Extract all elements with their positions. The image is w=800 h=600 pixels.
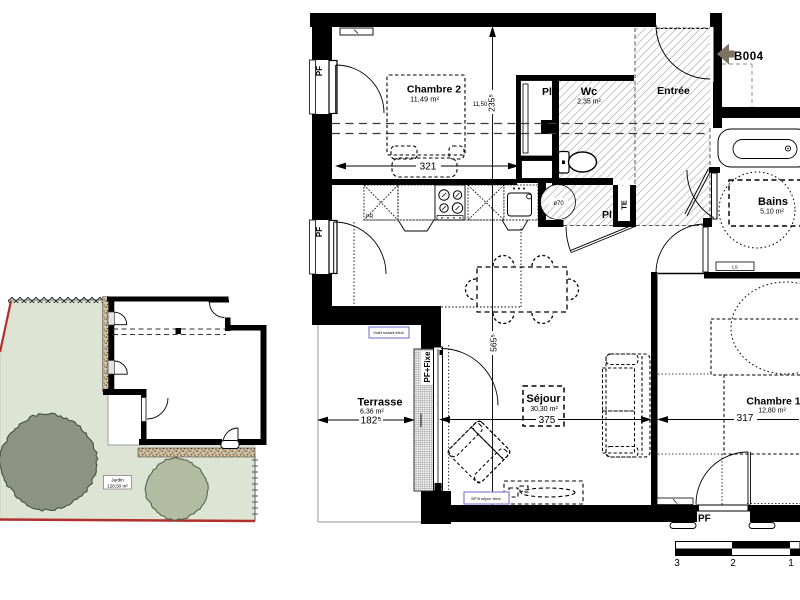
svg-text:Pl: Pl	[542, 86, 552, 98]
svg-text:Jardin: Jardin	[111, 478, 124, 483]
svg-text:375: 375	[539, 415, 556, 426]
svg-text:30,30 m²: 30,30 m²	[530, 406, 558, 413]
svg-text:Séjour: Séjour	[526, 393, 561, 405]
svg-text:3: 3	[674, 558, 680, 569]
svg-text:321: 321	[420, 162, 437, 173]
svg-text:Wc: Wc	[581, 86, 598, 98]
svg-text:11,50: 11,50	[473, 102, 488, 108]
svg-text:6,36 m²: 6,36 m²	[360, 409, 384, 416]
svg-text:1: 1	[788, 558, 794, 569]
svg-text:5,10 m²: 5,10 m²	[760, 209, 784, 216]
svg-text:PF: PF	[315, 66, 324, 76]
svg-text:565⁵: 565⁵	[489, 334, 499, 352]
svg-text:317: 317	[737, 413, 754, 424]
svg-text:Terrasse: Terrasse	[357, 397, 402, 409]
svg-text:Chambre 1: Chambre 1	[746, 396, 800, 408]
svg-text:11,49 m²: 11,49 m²	[410, 95, 440, 104]
svg-text:TE: TE	[620, 200, 629, 210]
svg-text:Pl: Pl	[602, 209, 612, 221]
svg-text:Entrée: Entrée	[657, 85, 690, 97]
svg-text:235⁵: 235⁵	[487, 94, 497, 112]
svg-text:FR: FR	[366, 214, 373, 220]
svg-text:182⁵: 182⁵	[361, 416, 382, 427]
svg-text:2: 2	[730, 558, 736, 569]
svg-text:PF: PF	[315, 227, 324, 237]
svg-text:LS: LS	[732, 265, 738, 270]
svg-text:12,80 m²: 12,80 m²	[758, 408, 786, 415]
svg-text:2,35 m²: 2,35 m²	[577, 99, 601, 106]
svg-text:B004: B004	[734, 51, 764, 63]
svg-text:PF: PF	[698, 514, 711, 525]
svg-text:VR: VR	[439, 482, 444, 489]
svg-text:128,50 m²: 128,50 m²	[107, 484, 128, 489]
svg-text:Bains: Bains	[758, 196, 788, 208]
svg-text:BP lit séjour élect.: BP lit séjour élect.	[471, 497, 501, 501]
svg-text:Volet roulant élect.: Volet roulant élect.	[373, 331, 404, 335]
svg-text:PF+Fixe: PF+Fixe	[423, 351, 432, 382]
svg-text:ø70: ø70	[553, 201, 564, 207]
